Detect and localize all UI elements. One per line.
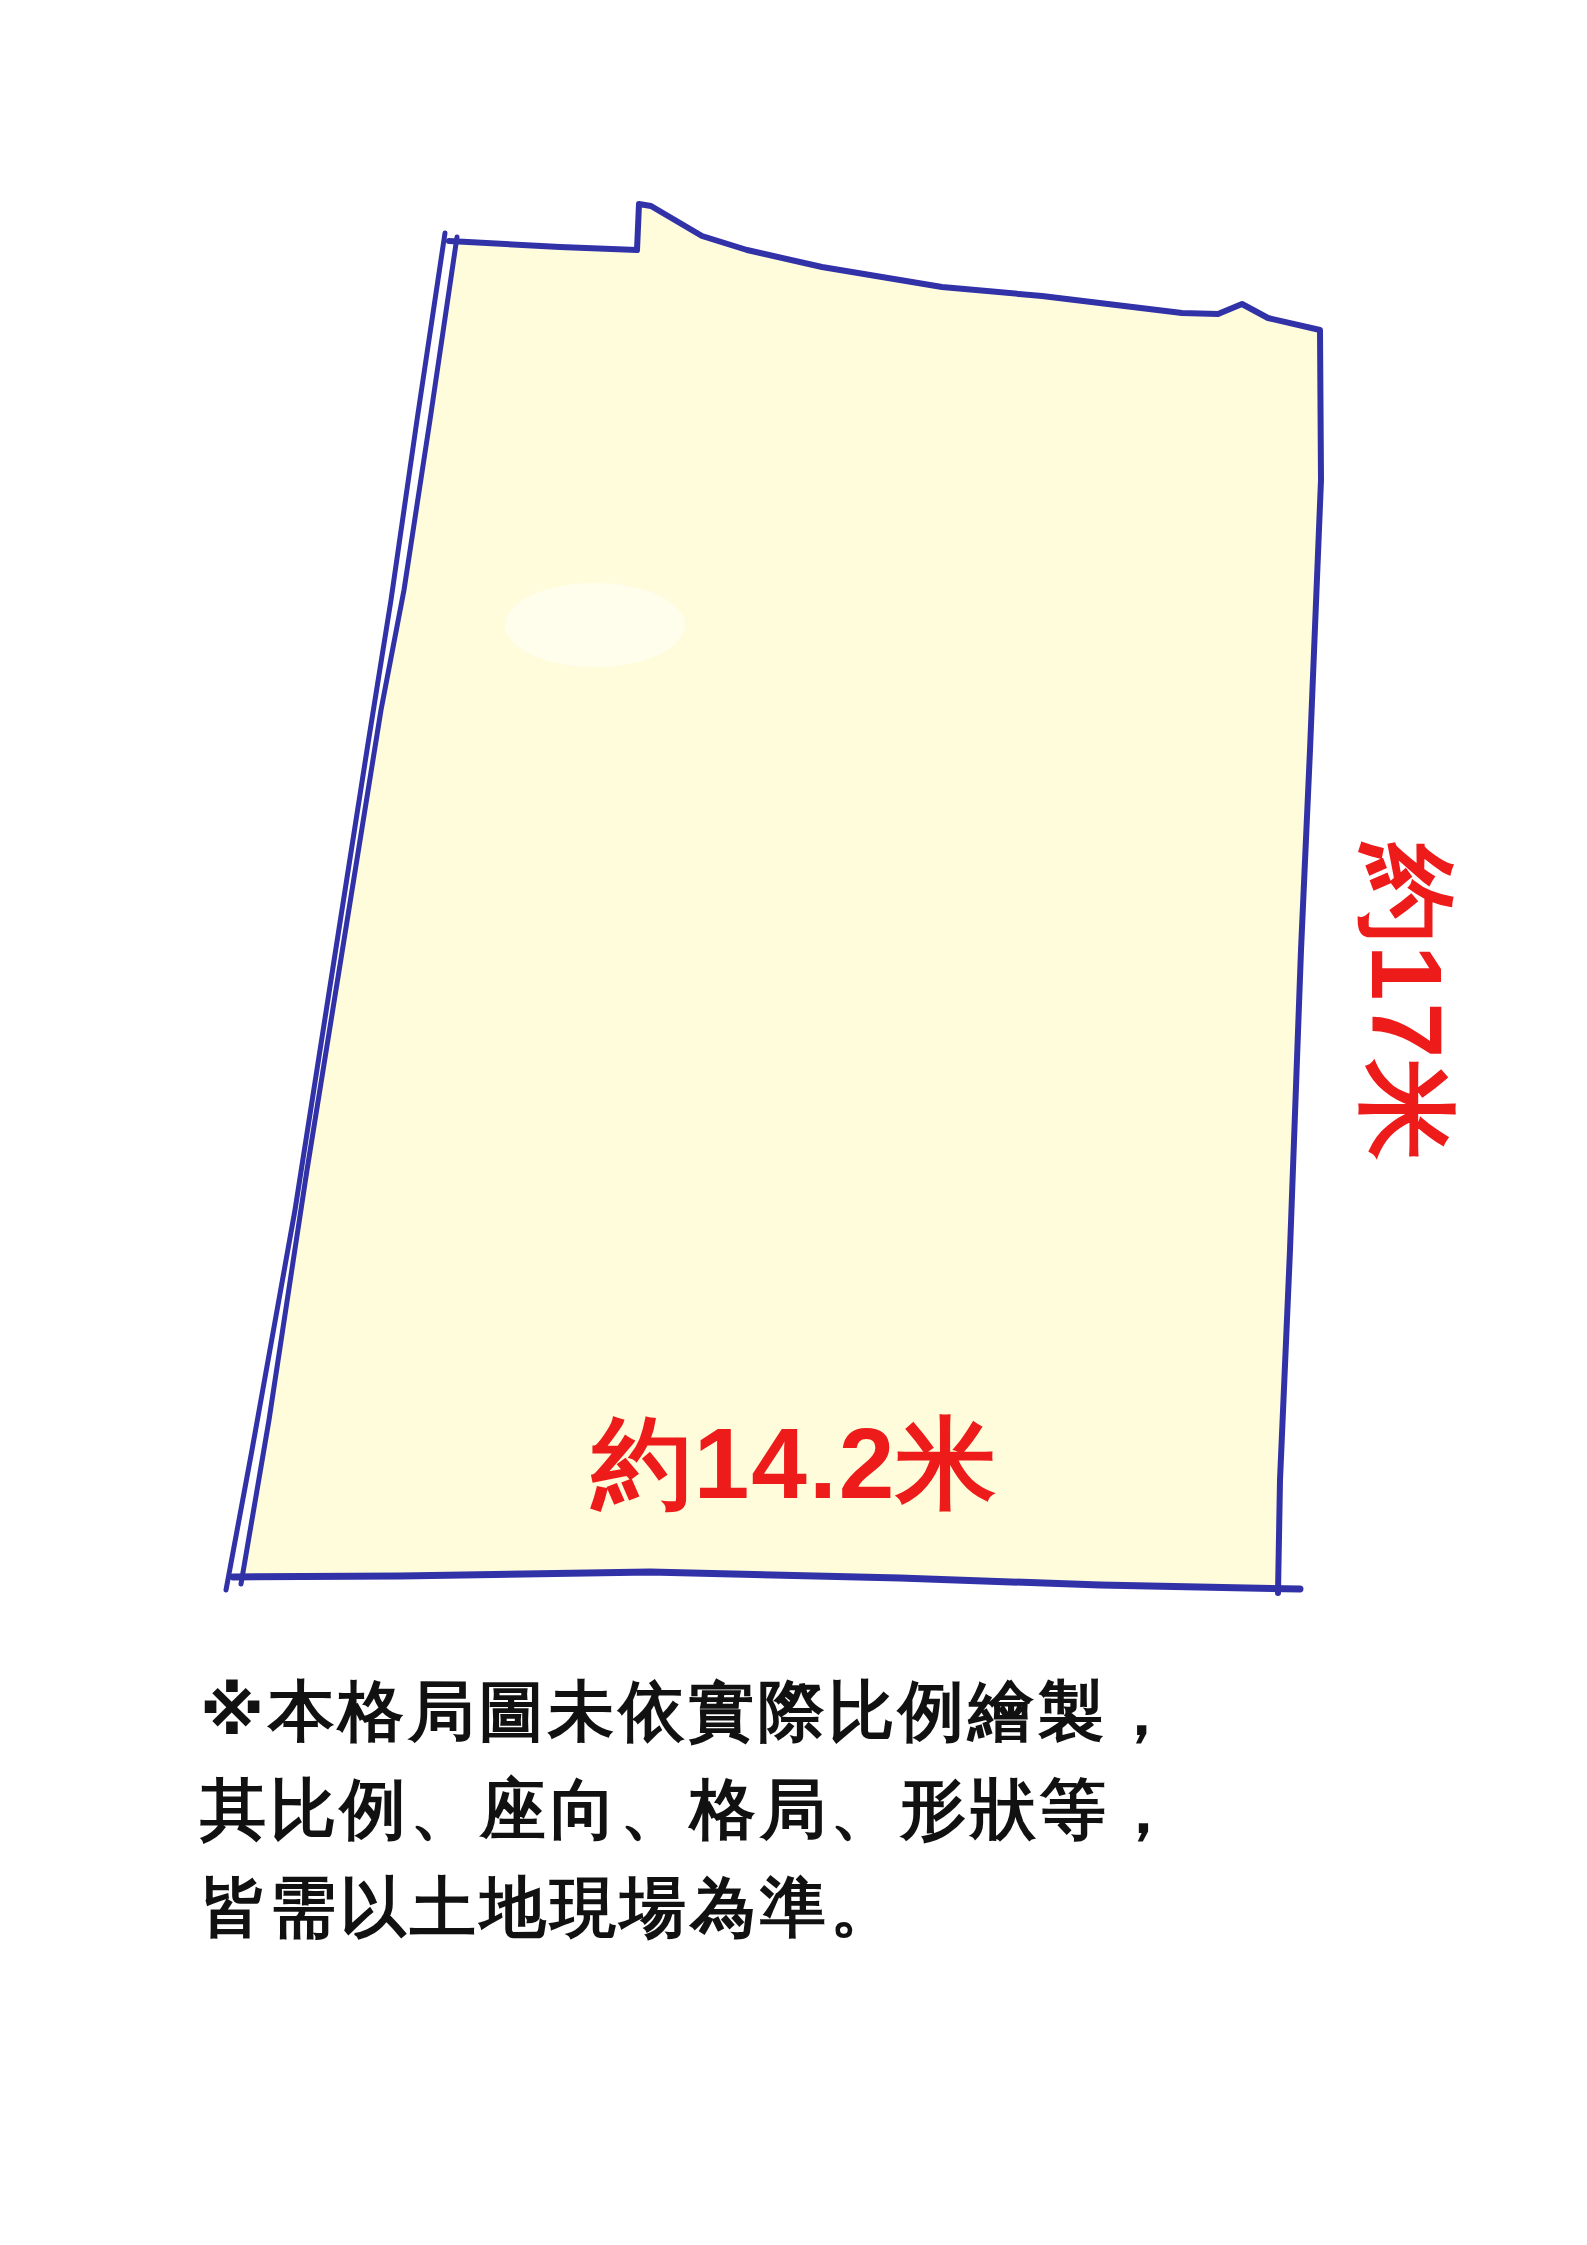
height-dimension-label: 約17米 <box>1337 843 1472 1162</box>
faint-smudge <box>505 583 685 667</box>
width-dimension-label: 約14.2米 <box>555 1398 1035 1533</box>
disclaimer-line-3: 皆需以土地現場為準。 <box>200 1858 1180 1956</box>
disclaimer-note: ※本格局圖未依實際比例繪製， 其比例、座向、格局、形狀等， 皆需以土地現場為準。 <box>200 1662 1180 1956</box>
land-plan-page: 約14.2米 約17米 ※本格局圖未依實際比例繪製， 其比例、座向、格局、形狀等… <box>0 0 1587 2245</box>
disclaimer-line-2: 其比例、座向、格局、形狀等， <box>200 1760 1180 1858</box>
land-plot-area <box>242 207 1319 1586</box>
disclaimer-line-1: ※本格局圖未依實際比例繪製， <box>200 1662 1180 1760</box>
